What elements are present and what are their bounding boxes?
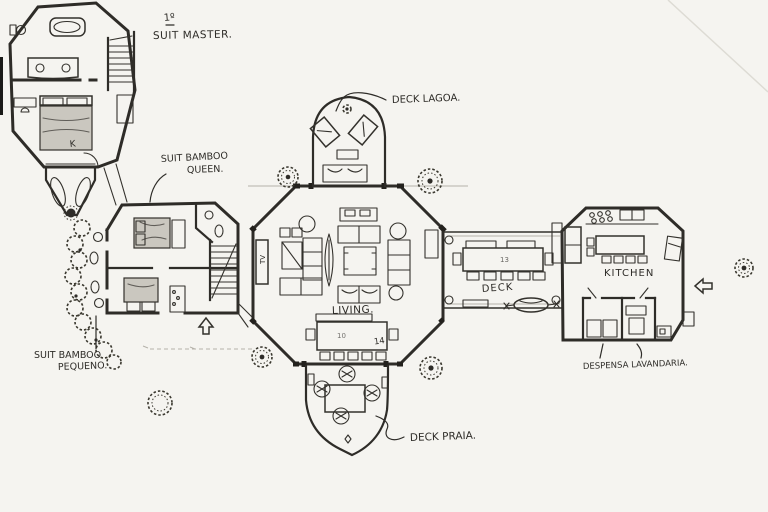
tree bbox=[420, 357, 442, 379]
kitchen-island bbox=[587, 236, 647, 263]
tree bbox=[735, 259, 753, 277]
door-swing bbox=[84, 153, 98, 167]
sink-counter bbox=[586, 210, 658, 224]
stove bbox=[590, 211, 613, 224]
bed-queen bbox=[134, 218, 170, 248]
tree bbox=[418, 169, 442, 193]
label-deck-lagoa: DECK LAGOA. bbox=[392, 93, 461, 106]
sofa-group-center bbox=[325, 208, 380, 303]
planter bbox=[308, 374, 314, 385]
deck-sofa bbox=[323, 165, 367, 182]
bathtub bbox=[50, 18, 85, 36]
table-mark-14: 14 bbox=[373, 336, 385, 347]
lounge-chair-right bbox=[348, 115, 377, 145]
floor-plan-drawing: K bbox=[0, 0, 768, 512]
nightstand bbox=[14, 98, 36, 112]
leader-queen bbox=[150, 174, 166, 202]
label-suit-bamboo-pequeno-1: SUIT BAMBOO bbox=[34, 350, 101, 361]
fridge bbox=[565, 227, 581, 263]
label-living: LIVING. bbox=[332, 304, 374, 317]
deck-praia bbox=[306, 366, 388, 455]
entry-arrow-up bbox=[199, 318, 213, 334]
label-deck: DECK bbox=[481, 282, 513, 295]
tree bbox=[252, 347, 272, 367]
leader-deck-praia bbox=[376, 416, 404, 440]
label-despensa-lavandaria: DESPENSA LAVANDARIA. bbox=[583, 358, 688, 372]
tree bbox=[148, 391, 172, 415]
label-suit-bamboo-queen-2: QUEEN. bbox=[187, 164, 224, 176]
chaise-right bbox=[388, 223, 410, 300]
side-cabinet bbox=[425, 230, 438, 258]
entry-arrow-left bbox=[695, 279, 712, 293]
wardrobe bbox=[172, 220, 185, 248]
tv-cabinet: TV bbox=[256, 240, 268, 284]
label-kitchen: KITCHEN bbox=[604, 268, 654, 279]
cafe-table bbox=[325, 385, 365, 412]
dryer bbox=[603, 320, 617, 337]
bath-upper-right bbox=[205, 211, 223, 237]
sofa-group-left bbox=[280, 216, 322, 295]
post bbox=[445, 236, 453, 244]
bed-king: K bbox=[40, 96, 92, 150]
stairs-bamboo bbox=[210, 240, 238, 300]
water-heater bbox=[657, 326, 671, 337]
sketch-sheet: K bbox=[0, 0, 768, 512]
washer bbox=[587, 320, 601, 337]
master-suite-building: K bbox=[10, 3, 135, 220]
toilet bbox=[10, 25, 26, 35]
bath-pequeno bbox=[91, 281, 104, 308]
table-mark-10: 10 bbox=[337, 332, 346, 340]
vanity-double-sink bbox=[28, 58, 78, 79]
side-counter bbox=[664, 236, 682, 261]
bamboo-hedge bbox=[65, 220, 121, 369]
appliance bbox=[629, 318, 644, 334]
label-floor-number: 1º bbox=[163, 12, 175, 24]
label-suit-bamboo-queen-1: SUIT BAMBOO bbox=[161, 150, 229, 164]
leader-deck-lagoa bbox=[336, 93, 386, 111]
tv-label: TV bbox=[259, 255, 267, 265]
exterior-annex bbox=[683, 312, 694, 326]
bed-pequeno bbox=[124, 278, 158, 311]
deck-lagoa bbox=[310, 97, 385, 186]
bath-queen bbox=[90, 233, 103, 265]
closet-hooks bbox=[170, 286, 185, 312]
bay-lounge-chairs bbox=[48, 176, 94, 208]
round-chairs bbox=[314, 366, 380, 424]
label-suit-master: SUIT MASTER. bbox=[153, 29, 233, 42]
dining-table: 10 14 bbox=[306, 314, 398, 360]
hammock bbox=[504, 298, 559, 312]
connector-path-west bbox=[238, 303, 253, 327]
floor-mark bbox=[345, 435, 351, 443]
bamboo-suites-building bbox=[65, 203, 238, 369]
potted-plant bbox=[343, 105, 351, 113]
leaf-table bbox=[325, 234, 333, 286]
label-suit-bamboo-pequeno-2: PEQUENO. bbox=[58, 360, 108, 373]
shelf bbox=[626, 306, 646, 315]
outdoor-dining-table: 13 bbox=[453, 241, 553, 280]
deck-walkway: 13 bbox=[443, 232, 562, 312]
bay-window bbox=[46, 167, 95, 215]
leader-despensa bbox=[600, 344, 642, 358]
deck-table bbox=[337, 150, 358, 159]
pantry-laundry-rooms bbox=[583, 288, 671, 340]
label-deck-praia: DECK PRAIA. bbox=[410, 430, 476, 444]
connector-path-north bbox=[104, 164, 127, 205]
deck-table-mark: 13 bbox=[500, 256, 509, 264]
living-pavilion: TV bbox=[251, 183, 445, 367]
post bbox=[445, 296, 453, 304]
